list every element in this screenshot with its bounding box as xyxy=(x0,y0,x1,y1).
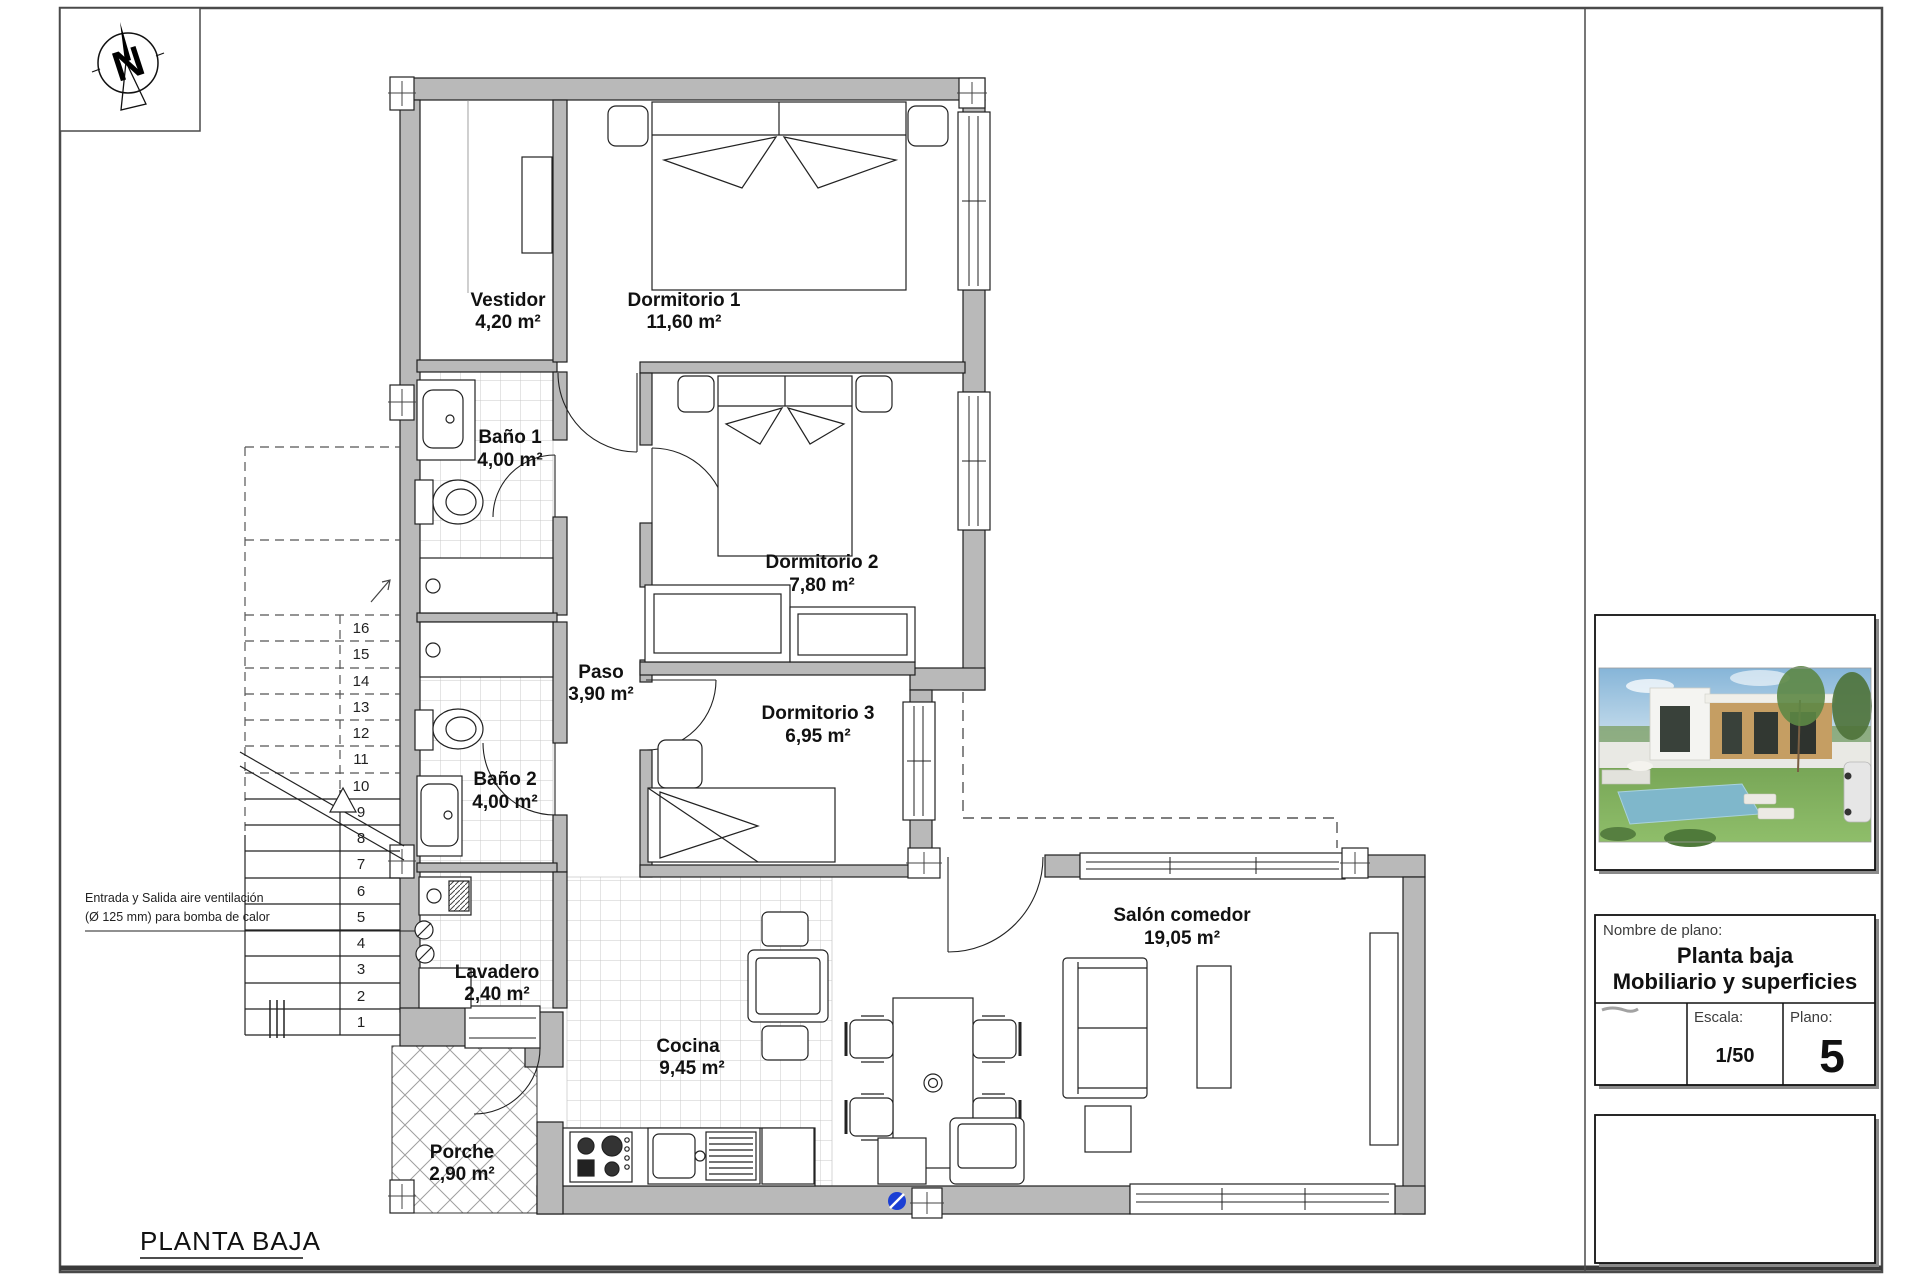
stairs-up-arrow xyxy=(371,580,390,602)
window-salon-north xyxy=(1080,853,1345,879)
kitchen-stove xyxy=(570,1132,632,1182)
terrace-dashed-outline xyxy=(963,692,1337,848)
plan-name-line2: Mobiliario y superficies xyxy=(1613,969,1858,994)
dorm2-nightstand-left xyxy=(678,376,714,412)
area-cocina: 9,45 m² xyxy=(659,1058,724,1079)
wall-bottom-a xyxy=(537,1186,1130,1214)
ottoman xyxy=(878,1138,926,1184)
step-number: 2 xyxy=(357,988,365,1005)
wall-dorm2-west-a xyxy=(640,373,652,445)
label-porche: Porche xyxy=(430,1142,494,1163)
bano1-shower xyxy=(420,558,553,613)
wall-dorm2-west-b xyxy=(640,523,652,587)
area-dorm2: 7,80 m² xyxy=(789,575,854,596)
area-paso: 3,90 m² xyxy=(568,684,633,705)
wall-dorm3-south xyxy=(640,865,910,877)
dorm1-bed xyxy=(652,102,906,290)
plus-marker xyxy=(910,1188,944,1218)
house-render-frame xyxy=(1595,615,1879,874)
floorplan-drawing: N xyxy=(0,0,1920,1280)
bano2-sink xyxy=(417,776,462,856)
plus-marker xyxy=(388,385,416,420)
armchair xyxy=(950,1118,1024,1184)
label-cocina: Cocina xyxy=(656,1036,720,1057)
wall-center-d xyxy=(553,622,567,743)
wall-vestidor-south xyxy=(417,360,557,372)
label-lavadero: Lavadero xyxy=(455,962,539,983)
north-compass: N xyxy=(60,8,200,131)
scale-value: 1/50 xyxy=(1716,1045,1755,1067)
dorm1-nightstand-left xyxy=(608,106,648,146)
dorm3-nightstand xyxy=(658,740,702,788)
wall-closet-south xyxy=(640,662,915,675)
bano1-toilet xyxy=(415,480,483,524)
tv-unit xyxy=(1370,933,1398,1145)
dorm2-nightstand-right xyxy=(856,376,892,412)
window-dorm2 xyxy=(958,392,990,530)
area-vestidor: 4,20 m² xyxy=(475,312,540,333)
plus-marker xyxy=(906,848,942,878)
empty-block-box xyxy=(1595,1115,1875,1263)
drain-symbol xyxy=(888,1192,906,1210)
wall-center-a xyxy=(553,100,567,362)
wall-east-c xyxy=(963,530,985,690)
step-number: 7 xyxy=(357,856,365,873)
wall-step xyxy=(910,668,985,690)
area-dorm3: 6,95 m² xyxy=(785,726,850,747)
step-number: 8 xyxy=(357,830,365,847)
door-dorm1 xyxy=(558,373,637,452)
plan-sheet: N xyxy=(0,0,1920,1280)
step-number: 1 xyxy=(357,1014,365,1031)
washing-machine xyxy=(419,877,471,915)
dorm-closet-b xyxy=(790,607,915,662)
dorm2-bed xyxy=(718,376,852,556)
vent-note-line1: Entrada y Salida aire ventilación xyxy=(85,891,264,905)
area-porche: 2,90 m² xyxy=(429,1164,494,1185)
step-number: 13 xyxy=(353,699,370,716)
bano2-shower xyxy=(420,622,553,677)
bano1-sink xyxy=(417,380,475,460)
plan-name-label: Nombre de plano: xyxy=(1603,922,1722,939)
side-table xyxy=(1085,1106,1131,1152)
kitchen-sink xyxy=(648,1128,760,1184)
title-block: Nombre de plano: Planta baja Mobiliario … xyxy=(1595,915,1879,1089)
wall-center-c xyxy=(553,517,567,615)
step-number: 10 xyxy=(353,778,370,795)
wall-porch-top xyxy=(400,1008,467,1046)
plus-marker xyxy=(388,845,416,878)
label-bano1: Baño 1 xyxy=(478,427,542,448)
door-dorm2 xyxy=(652,448,727,523)
step-number: 16 xyxy=(353,620,370,637)
vent-annotation: Entrada y Salida aire ventilación (Ø 125… xyxy=(85,891,417,931)
stairs-start-ticks xyxy=(270,1000,284,1038)
house-render-image xyxy=(1599,666,1872,847)
bano2-toilet xyxy=(415,709,483,750)
vent-note-line2: (Ø 125 mm) para bomba de calor xyxy=(85,910,270,924)
dorm-closet-a xyxy=(645,585,790,662)
step-number: 9 xyxy=(357,804,365,821)
wall-lavadero-east xyxy=(553,872,567,1008)
plus-marker xyxy=(388,77,416,110)
wall-east-b xyxy=(963,290,985,392)
label-paso: Paso xyxy=(578,662,623,683)
door-salon xyxy=(948,857,1043,952)
step-number: 6 xyxy=(357,883,365,900)
wall-salon-east xyxy=(1403,877,1425,1214)
window-dorm1 xyxy=(958,112,990,290)
stairs-break-line xyxy=(240,752,404,860)
window-dorm3 xyxy=(903,702,935,820)
sideboard xyxy=(1197,966,1231,1088)
area-dorm1: 11,60 m² xyxy=(647,312,722,333)
sheet-title: PLANTA BAJA xyxy=(140,1226,321,1256)
label-dorm2: Dormitorio 2 xyxy=(766,552,879,573)
plus-marker xyxy=(1340,848,1370,878)
sofa xyxy=(1063,958,1147,1098)
step-number: 12 xyxy=(353,725,370,742)
area-lavadero: 2,40 m² xyxy=(464,984,529,1005)
plus-marker xyxy=(388,1180,416,1213)
staircase: 16 15 14 13 12 11 10 9 8 7 6 5 4 3 2 1 xyxy=(240,447,404,1038)
step-number: 3 xyxy=(357,961,365,978)
sheet-title-group: PLANTA BAJA xyxy=(140,1226,321,1258)
vestidor-wardrobe xyxy=(522,157,552,253)
kitchen-cabinet xyxy=(762,1128,814,1184)
step-number: 11 xyxy=(353,751,369,768)
label-bano2: Baño 2 xyxy=(473,769,536,790)
scale-label: Escala: xyxy=(1694,1009,1743,1026)
dorm3-bed xyxy=(648,788,835,862)
step-number: 5 xyxy=(357,909,365,926)
wall-top xyxy=(400,78,985,100)
window-salon-south xyxy=(1130,1184,1395,1214)
wall-porch-east xyxy=(537,1122,563,1214)
stairs-dashed-outline xyxy=(245,447,400,835)
plus-marker xyxy=(957,78,987,108)
step-number: 14 xyxy=(353,673,370,690)
wall-bottom-b xyxy=(1395,1186,1425,1214)
label-salon: Salón comedor xyxy=(1113,905,1251,926)
label-dorm3: Dormitorio 3 xyxy=(762,703,875,724)
label-dorm1: Dormitorio 1 xyxy=(628,290,741,311)
step-number: 15 xyxy=(353,646,370,663)
dorm1-nightstand-right xyxy=(908,106,948,146)
plan-number-label: Plano: xyxy=(1790,1009,1833,1026)
plan-name-line1: Planta baja xyxy=(1677,943,1794,968)
wall-bano2-lavadero xyxy=(417,863,557,872)
wall-shower-divider xyxy=(417,613,557,622)
area-bano1: 4,00 m² xyxy=(477,450,542,471)
wall-salon-top-a xyxy=(1045,855,1080,877)
empty-block xyxy=(1595,1115,1879,1267)
area-salon: 19,05 m² xyxy=(1144,928,1220,949)
area-bano2: 4,00 m² xyxy=(472,792,537,813)
plan-number: 5 xyxy=(1819,1030,1845,1082)
label-vestidor: Vestidor xyxy=(471,290,547,311)
step-number: 4 xyxy=(357,935,365,952)
door-lavadero-exterior xyxy=(465,1006,540,1048)
wall-dorm1-south xyxy=(640,362,965,373)
